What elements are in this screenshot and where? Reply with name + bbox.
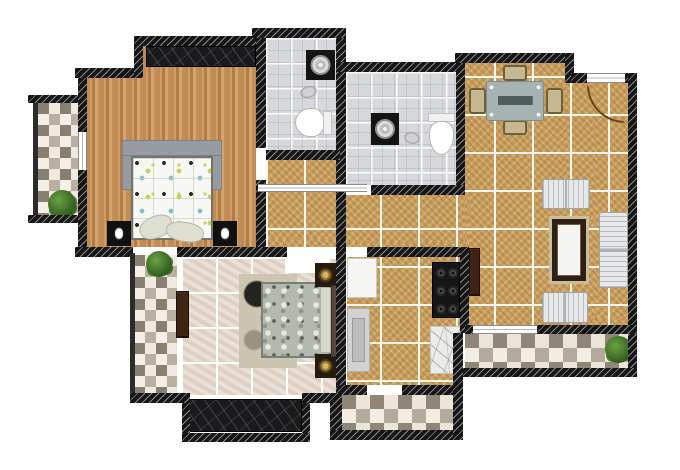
window-bedroom1-balcony — [78, 132, 87, 170]
dining-chair — [469, 88, 486, 114]
plant — [146, 251, 172, 277]
hallway-east-floor — [346, 195, 469, 247]
nightstand-lamp — [315, 354, 336, 378]
bed2-pillow — [320, 287, 331, 353]
hallway-west-floor — [266, 160, 336, 247]
loveseat-bottom — [542, 292, 588, 323]
entrance-door-opening — [587, 73, 625, 83]
wall — [182, 433, 310, 442]
kitchen-counter-white — [347, 258, 377, 298]
wall — [75, 68, 143, 78]
wall — [75, 247, 133, 257]
wall — [456, 62, 465, 195]
dining-chair — [503, 120, 527, 135]
wall — [336, 62, 465, 72]
wardrobe1 — [146, 46, 256, 67]
wall — [177, 247, 287, 257]
wall — [252, 28, 346, 38]
bathroom1-toilet — [295, 108, 325, 137]
wall — [302, 403, 310, 433]
headboard1 — [122, 140, 222, 156]
wall — [182, 403, 190, 434]
nightstand-lamp — [213, 221, 237, 246]
utility-balcony-floor — [342, 395, 453, 430]
wall — [330, 430, 463, 440]
nightstand-lamp — [315, 263, 336, 287]
wall — [371, 185, 465, 195]
wall — [134, 36, 143, 78]
corridor-rail — [130, 253, 135, 393]
wall — [130, 393, 190, 403]
wardrobe2 — [188, 399, 302, 432]
balcony-rail — [33, 103, 38, 215]
wall — [336, 247, 346, 395]
bathroom1-sink — [306, 50, 335, 80]
center-table — [549, 216, 589, 284]
wall — [465, 325, 473, 334]
wall — [453, 333, 463, 440]
balcony-door-living — [473, 325, 537, 334]
wall — [367, 247, 469, 257]
bathroom1-toilet-tank — [323, 111, 332, 135]
balcony-wall — [28, 95, 78, 103]
dining-chair — [546, 88, 563, 114]
wall — [134, 36, 262, 46]
balcony-bottom-right-floor — [465, 334, 628, 368]
stove — [432, 262, 460, 318]
corridor-cabinet — [176, 291, 189, 338]
wall — [463, 368, 637, 377]
bathroom2-sink — [371, 113, 399, 145]
balcony-wall — [28, 215, 78, 223]
wall — [571, 73, 587, 83]
hallway-opening-band — [258, 184, 367, 192]
sofa-right — [599, 212, 628, 288]
wall — [460, 247, 469, 333]
floor-plan — [0, 0, 680, 470]
kitchen-sink-basin — [352, 318, 365, 362]
nightstand-lamp — [107, 221, 131, 246]
tall-cabinet-living — [469, 248, 480, 296]
wall — [537, 325, 637, 334]
dining-table — [486, 81, 544, 121]
door-utility-balcony — [367, 385, 402, 395]
wall — [455, 53, 568, 63]
door-bedroom1 — [256, 148, 266, 180]
dining-chair — [503, 65, 527, 81]
wall — [256, 150, 340, 160]
plant — [48, 190, 76, 218]
wall — [256, 36, 266, 247]
loveseat-top — [542, 179, 590, 209]
